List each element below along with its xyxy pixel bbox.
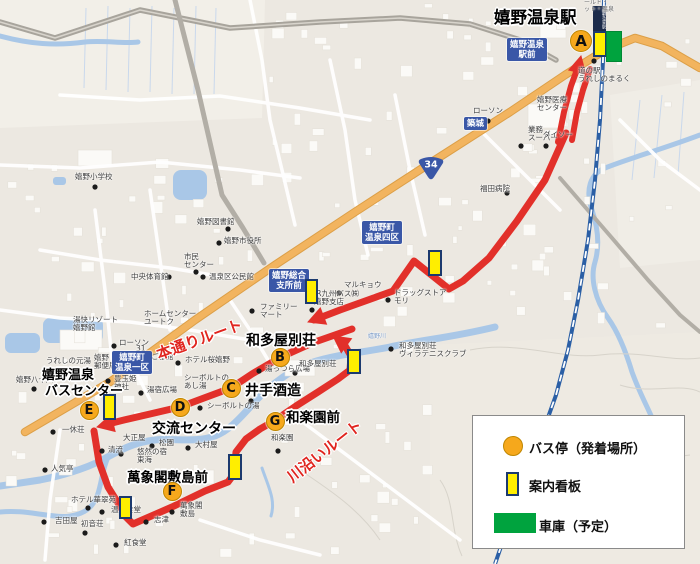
- poi-dot: [309, 307, 314, 312]
- building: [309, 141, 317, 151]
- building: [272, 28, 284, 38]
- poi-dot: [388, 346, 393, 351]
- legend-garage-icon: [494, 513, 536, 533]
- poi-dot: [138, 390, 143, 395]
- building: [81, 262, 94, 272]
- building: [34, 207, 40, 212]
- building: [269, 76, 273, 82]
- building: [332, 482, 338, 489]
- bus-stop-marker: B: [271, 348, 290, 367]
- building: [292, 279, 298, 284]
- poi-dot: [99, 448, 104, 453]
- poi-dot: [518, 143, 523, 148]
- poi-dot: [193, 269, 198, 274]
- poi-dot: [185, 445, 190, 450]
- building: [445, 276, 454, 283]
- poi-dot: [31, 386, 36, 391]
- building: [386, 111, 392, 120]
- poi-dot: [275, 448, 280, 453]
- building: [110, 520, 115, 529]
- bus-stop-marker: C: [222, 379, 241, 398]
- building: [188, 470, 214, 484]
- building: [365, 147, 371, 155]
- station-name-tag: 嬉野温泉駅: [593, 6, 606, 31]
- map-title: 嬉野温泉駅: [494, 4, 577, 28]
- route34-shield: 34: [418, 155, 444, 181]
- building: [281, 143, 292, 153]
- building: [67, 507, 72, 513]
- signboard-marker: [428, 250, 442, 276]
- building: [371, 515, 378, 522]
- building: [335, 203, 340, 208]
- building: [91, 313, 96, 318]
- building: [473, 210, 483, 221]
- route34-number: 34: [424, 160, 438, 171]
- poi-dot: [200, 274, 205, 279]
- poi-dot: [543, 143, 548, 148]
- bus-stop-marker: A: [570, 30, 592, 52]
- building: [379, 523, 391, 532]
- building: [102, 227, 106, 236]
- building: [308, 416, 319, 422]
- building: [323, 45, 331, 50]
- building: [193, 199, 204, 207]
- garage-marker: [606, 31, 622, 62]
- building: [601, 163, 606, 174]
- poi-dot: [336, 290, 341, 295]
- building: [119, 300, 123, 308]
- building: [414, 517, 419, 524]
- legend-signboard-label: 案内看板: [529, 476, 581, 495]
- building: [67, 293, 72, 301]
- building: [51, 257, 59, 262]
- building: [523, 224, 536, 235]
- building: [437, 128, 447, 134]
- building: [523, 144, 532, 152]
- building: [312, 129, 324, 136]
- building: [251, 174, 263, 185]
- building: [360, 475, 370, 483]
- building: [301, 30, 308, 39]
- building: [331, 547, 339, 555]
- building: [62, 358, 67, 365]
- building: [354, 58, 361, 69]
- map-canvas: 34 嬉野温泉駅 ールド・ット・温泉道の駅うれしのまるく嬉野医療センターローソン…: [0, 0, 700, 564]
- building: [422, 465, 432, 474]
- poi-dot: [385, 297, 390, 302]
- building: [17, 453, 26, 460]
- building: [424, 4, 432, 8]
- building: [404, 441, 411, 450]
- signboard-marker: [593, 31, 607, 57]
- building: [66, 459, 76, 467]
- poi-dot: [85, 505, 90, 510]
- building: [6, 476, 17, 486]
- building: [74, 331, 85, 343]
- building: [464, 35, 471, 40]
- poi-dot: [113, 542, 118, 547]
- building: [286, 533, 296, 539]
- poi-dot: [591, 58, 596, 63]
- building: [123, 395, 135, 403]
- building: [532, 260, 544, 271]
- building: [59, 469, 72, 475]
- poi-dot: [111, 343, 116, 348]
- building: [154, 176, 166, 185]
- building: [383, 316, 395, 327]
- building: [517, 307, 526, 316]
- building: [685, 39, 690, 44]
- building: [514, 48, 525, 59]
- building: [545, 130, 557, 136]
- building: [247, 250, 252, 261]
- building: [463, 72, 474, 81]
- signboard-marker: [228, 454, 242, 480]
- building: [79, 444, 85, 451]
- building: [294, 507, 299, 518]
- building: [681, 78, 691, 86]
- building: [481, 57, 494, 65]
- building: [157, 195, 165, 200]
- building: [453, 236, 457, 243]
- building: [194, 465, 198, 475]
- building: [294, 382, 305, 391]
- building: [402, 342, 413, 352]
- poi-dot: [118, 451, 123, 456]
- building: [12, 451, 17, 456]
- poi-dot: [41, 519, 46, 524]
- building: [584, 158, 590, 164]
- bus-stop-marker: E: [80, 401, 99, 420]
- signboard-marker: [347, 349, 361, 374]
- map-legend: バス停（発着場所） 案内看板 車庫（予定）: [472, 415, 685, 549]
- building: [322, 253, 330, 257]
- building: [666, 62, 677, 69]
- building: [78, 150, 112, 166]
- poi-dot: [504, 190, 509, 195]
- signboard-marker: [119, 496, 132, 519]
- building: [182, 286, 186, 295]
- building: [377, 491, 389, 503]
- building: [286, 13, 297, 21]
- building: [129, 196, 136, 202]
- building: [486, 21, 492, 26]
- building: [213, 229, 220, 233]
- building: [407, 245, 413, 256]
- poi-dot: [485, 118, 490, 123]
- building: [447, 31, 453, 39]
- building: [294, 113, 300, 125]
- building: [281, 435, 288, 443]
- building: [285, 360, 315, 376]
- building: [18, 392, 26, 403]
- building: [629, 217, 634, 222]
- building: [397, 306, 407, 316]
- building: [418, 342, 423, 348]
- building: [487, 280, 492, 285]
- poi-dot: [256, 368, 261, 373]
- poi-dot: [92, 184, 97, 189]
- legend-bus-stop-label: バス停（発着場所）: [529, 438, 646, 457]
- route-direction-arrow: [304, 307, 328, 331]
- building: [175, 215, 187, 224]
- building: [443, 293, 455, 303]
- building: [385, 432, 390, 444]
- poi-dot: [166, 274, 171, 279]
- signboard-marker: [103, 394, 116, 420]
- building: [439, 197, 452, 205]
- building: [25, 195, 34, 200]
- building: [175, 365, 183, 377]
- building: [462, 200, 468, 205]
- poi-dot: [82, 530, 87, 535]
- building: [321, 458, 332, 466]
- bus-stop-marker: D: [171, 398, 190, 417]
- building: [8, 182, 17, 188]
- building: [392, 498, 399, 505]
- building: [564, 292, 572, 301]
- building: [584, 197, 590, 205]
- bus-stop-marker: F: [163, 482, 182, 501]
- building: [485, 42, 491, 52]
- poi-dot: [169, 509, 174, 514]
- building: [598, 313, 605, 324]
- poi-dot: [248, 398, 253, 403]
- building: [401, 66, 413, 77]
- building: [458, 226, 462, 230]
- building: [423, 405, 432, 416]
- building: [666, 206, 673, 210]
- building: [124, 543, 129, 554]
- building: [315, 37, 327, 44]
- building: [656, 323, 665, 328]
- building: [55, 497, 68, 503]
- poi-dot: [292, 370, 297, 375]
- building: [664, 102, 671, 107]
- building: [544, 247, 553, 253]
- building: [233, 357, 242, 364]
- building: [98, 348, 110, 353]
- building: [219, 257, 224, 265]
- building: [201, 217, 212, 224]
- building: [48, 533, 59, 537]
- poi-dot: [42, 467, 47, 472]
- building: [114, 272, 126, 283]
- poi-dot: [50, 429, 55, 434]
- building: [544, 266, 550, 276]
- legend-garage-label: 車庫（予定）: [539, 516, 617, 535]
- bus-stop-marker: G: [266, 412, 285, 431]
- building: [518, 87, 528, 96]
- poi-dot: [105, 378, 110, 383]
- poi-dot: [197, 405, 202, 410]
- poi-dot: [143, 519, 148, 524]
- legend-bus-stop-icon: [503, 436, 523, 456]
- signboard-marker: [305, 279, 318, 304]
- legend-signboard-icon: [506, 472, 519, 496]
- building: [94, 544, 99, 554]
- poi-dot: [225, 226, 230, 231]
- poi-dot: [149, 443, 154, 448]
- building: [74, 227, 83, 236]
- poi-dot: [99, 509, 104, 514]
- building: [598, 283, 609, 290]
- building: [510, 290, 516, 295]
- poi-dot: [216, 240, 221, 245]
- building: [511, 264, 518, 270]
- building: [539, 253, 545, 259]
- poi-dot: [175, 360, 180, 365]
- building: [401, 287, 413, 297]
- building: [220, 549, 232, 558]
- poi-dot: [249, 308, 254, 313]
- building: [371, 247, 384, 251]
- building: [376, 424, 386, 430]
